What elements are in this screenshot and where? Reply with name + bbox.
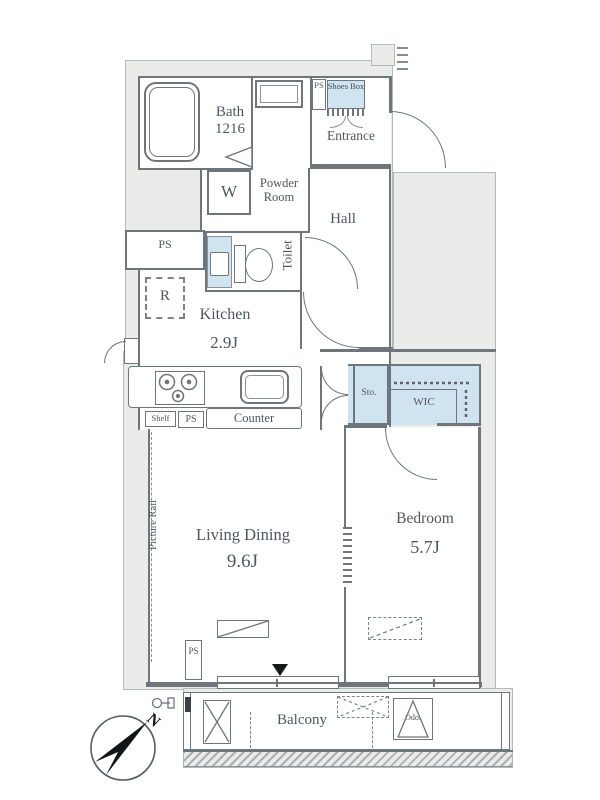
balcony-right-divider — [501, 692, 510, 750]
evacuation-hatch-box — [337, 696, 389, 718]
linen-closet-inner — [260, 85, 298, 103]
shelf-label: Shelf — [145, 414, 176, 424]
label-kitchen: Kitchen — [180, 306, 270, 324]
wall-entrance-step — [310, 164, 391, 166]
label-storage: Sto. — [352, 388, 386, 399]
window-living-track — [218, 682, 338, 684]
refrigerator-label: R — [145, 288, 185, 305]
shoes-box-label: Shoes Box — [327, 82, 365, 92]
window-bedroom — [388, 676, 480, 689]
north-label: N — [143, 710, 163, 731]
floor-plan: W Shelf PS Counter R PS Shoes Box PS — [0, 0, 600, 800]
window-living-tick — [276, 679, 278, 687]
counter-label: Counter — [206, 411, 302, 425]
toilet-hand-sink-icon — [210, 252, 229, 276]
label-hall: Hall — [315, 211, 371, 228]
service-door-stub — [124, 338, 139, 364]
shared-wall-hatch-1 — [397, 47, 408, 49]
label-entrance: Entrance — [315, 128, 387, 143]
door-arc-service — [104, 341, 126, 363]
window-bedroom-tick — [433, 679, 435, 687]
wall-bedroom-top-right — [437, 423, 481, 426]
outdoor-unit-label: Odo. — [395, 714, 431, 723]
balcony-drain-pipe — [185, 697, 191, 712]
kitchen-sink-inner — [245, 375, 284, 399]
label-balcony: Balcony — [270, 712, 334, 729]
label-bedroom: Bedroom — [380, 510, 470, 527]
label-living-size: 9.6J — [195, 551, 290, 572]
tv-board-icon — [217, 620, 269, 638]
balcony-railing — [183, 750, 513, 767]
partition-rail-hatch — [343, 527, 352, 587]
wall-section-top — [320, 349, 496, 352]
exterior-area-right — [393, 172, 496, 351]
label-toilet: Toilet — [281, 233, 296, 277]
label-picture-rail: Picture Rail — [148, 471, 160, 579]
door-arc-entrance — [390, 111, 446, 168]
ps-label-entrance: PS — [314, 81, 325, 91]
label-wic: WIC — [400, 396, 448, 408]
shared-wall-hatch-3 — [397, 61, 408, 63]
label-bath-size: 1216 — [203, 121, 257, 138]
label-bath-name: Bath — [203, 104, 257, 121]
label-living-dining: Living Dining — [168, 526, 318, 544]
window-living — [217, 676, 339, 689]
washer-label: W — [207, 182, 251, 201]
shared-wall-hatch-2 — [397, 54, 408, 56]
wall-bedroom-top-left — [344, 425, 387, 428]
north-arrow — [95, 722, 147, 775]
wall-entrance-top-right — [389, 76, 392, 113]
balcony-divider-dash-2 — [372, 712, 373, 748]
hose-bib-icon — [153, 698, 175, 708]
ps-label-kitchen: PS — [178, 414, 204, 425]
bedroom-dashed-furniture — [368, 617, 422, 640]
ac-outdoor-unit-box — [203, 700, 231, 744]
bathtub-icon — [144, 82, 200, 162]
ps-label-living: PS — [188, 646, 200, 656]
balcony-divider-dash-1 — [250, 712, 251, 748]
label-kitchen-size: 2.9J — [194, 333, 254, 352]
compass-icon: N — [91, 710, 164, 780]
label-bedroom-size: 5.7J — [382, 537, 468, 557]
toilet-bowl-icon — [245, 248, 273, 282]
exterior-notch-top-right — [371, 44, 395, 66]
label-bath: Bath 1216 — [203, 104, 257, 138]
label-powder-room: Powder Room — [250, 176, 308, 204]
shoes-box-step — [327, 109, 365, 116]
bathtub-inner — [149, 87, 195, 157]
kitchen-sink-icon — [240, 370, 289, 404]
linen-closet — [255, 80, 303, 108]
label-ps-room: PS — [138, 238, 192, 251]
wall-bedroom-right — [478, 427, 481, 688]
stove-icon — [155, 371, 205, 405]
shared-wall-hatch-4 — [397, 68, 408, 70]
